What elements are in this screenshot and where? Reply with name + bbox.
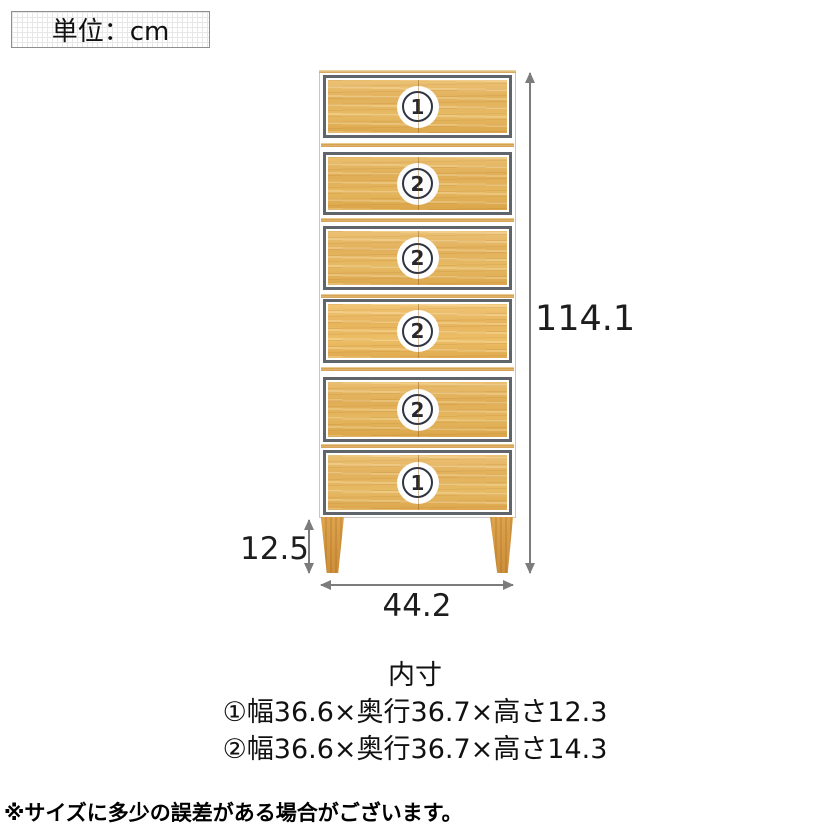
drawer-5-number-badge: 2 <box>397 389 439 431</box>
carcass-rail <box>321 367 514 371</box>
chest-body: 1 2 2 2 <box>319 70 516 518</box>
drawer-1: 1 <box>323 75 512 138</box>
drawer-4-number: 2 <box>402 316 433 347</box>
drawer-6-wood-front: 1 <box>328 455 507 510</box>
unit-label-box: 単位：cm <box>11 11 210 48</box>
drawer-6-number-badge: 1 <box>397 462 439 504</box>
height-dimension-value: 114.1 <box>535 299 635 339</box>
drawer-6: 1 <box>323 450 512 515</box>
drawer-2: 2 <box>323 152 512 215</box>
carcass-rail <box>321 143 514 147</box>
drawer-1-number: 1 <box>402 91 433 122</box>
drawer-5-number: 2 <box>402 394 433 425</box>
chest-right-leg <box>490 517 514 573</box>
chest-top-edge <box>319 70 516 73</box>
drawer-3-number: 2 <box>402 243 433 274</box>
drawer-1-wood-front: 1 <box>328 80 507 133</box>
drawer-1-number-badge: 1 <box>397 86 439 128</box>
drawer-3-number-badge: 2 <box>397 237 439 279</box>
carcass-rail <box>321 218 514 222</box>
drawer-5-wood-front: 2 <box>328 382 507 437</box>
inner-size-drawer1-spec: ①幅36.6×奥行36.7×高さ12.3 <box>0 690 830 729</box>
arrow-up-icon <box>304 519 314 530</box>
drawer-3-wood-front: 2 <box>328 231 507 285</box>
inner-size-drawer2-spec: ②幅36.6×奥行36.7×高さ14.3 <box>0 727 830 766</box>
size-tolerance-note: ※サイズに多少の誤差がある場合がございます。 <box>4 797 463 827</box>
inner-size-title: 内寸 <box>0 653 830 692</box>
dimension-diagram: 単位：cm 1 2 2 <box>0 0 830 830</box>
drawer-2-number: 2 <box>402 168 433 199</box>
drawer-4-wood-front: 2 <box>328 304 507 358</box>
drawer-4: 2 <box>323 299 512 363</box>
drawer-2-wood-front: 2 <box>328 157 507 210</box>
unit-label: 単位：cm <box>52 11 170 48</box>
width-dimension-value: 44.2 <box>321 588 513 624</box>
drawer-2-number-badge: 2 <box>397 163 439 205</box>
arrow-up-icon <box>525 72 535 83</box>
carcass-rail <box>321 294 514 298</box>
drawer-4-number-badge: 2 <box>397 310 439 352</box>
carcass-rail <box>321 444 514 448</box>
leg-height-dimension-value: 12.5 <box>240 531 304 567</box>
height-dimension-arrow <box>529 73 531 573</box>
drawer-3: 2 <box>323 226 512 290</box>
arrow-down-icon <box>525 563 535 574</box>
chest-left-leg <box>320 517 344 573</box>
width-dimension-arrow <box>321 584 513 586</box>
drawer-5: 2 <box>323 377 512 442</box>
drawer-6-number: 1 <box>402 467 433 498</box>
